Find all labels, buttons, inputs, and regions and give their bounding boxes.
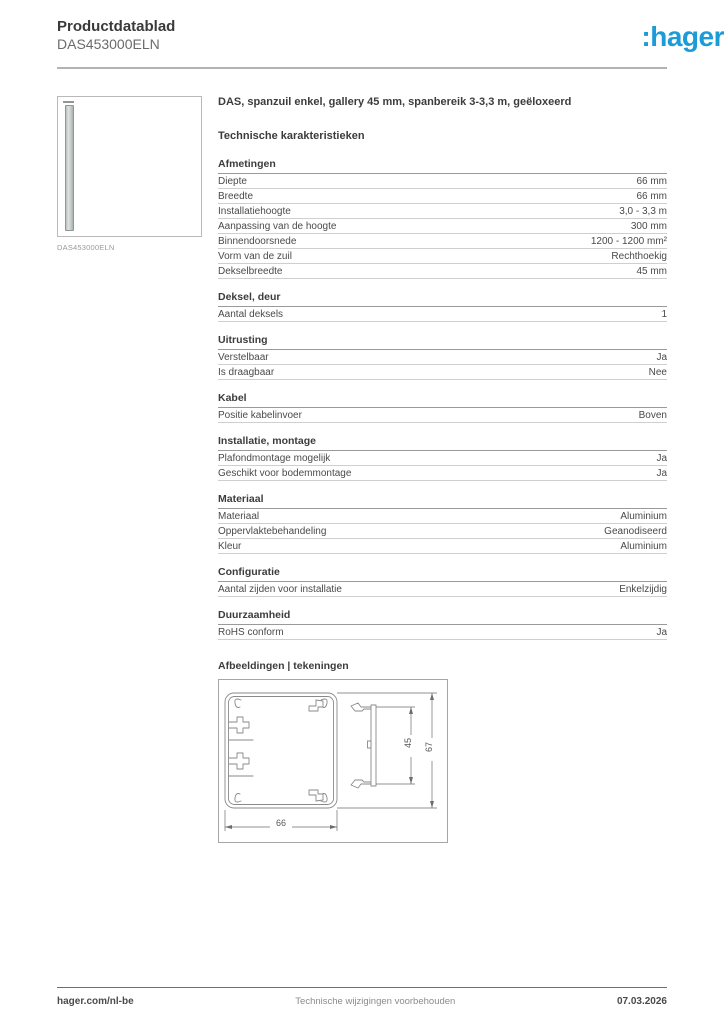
spec-value: Boven — [639, 410, 667, 421]
spec-row: Oppervlaktebehandeling Geanodiseerd — [218, 524, 667, 539]
spec-row: Kleur Aluminium — [218, 539, 667, 554]
dim-height-label: 67 — [424, 742, 434, 752]
spec-value: 1200 - 1200 mm² — [591, 236, 667, 247]
spec-label: Oppervlaktebehandeling — [218, 526, 326, 537]
spec-value: Geanodiseerd — [604, 526, 667, 537]
spec-group-title: Duurzaamheid — [218, 609, 667, 625]
spec-row: Verstelbaar Ja — [218, 350, 667, 365]
spec-value: Aluminium — [620, 541, 667, 552]
spec-group: Duurzaamheid RoHS conform Ja — [218, 609, 667, 640]
spec-group-title: Uitrusting — [218, 334, 667, 350]
spec-row: Is draagbaar Nee — [218, 365, 667, 380]
spec-row: Positie kabelinvoer Boven — [218, 408, 667, 423]
spec-group: Installatie, montage Plafondmontage moge… — [218, 435, 667, 481]
spec-label: Materiaal — [218, 511, 259, 522]
spec-label: Aanpassing van de hoogte — [218, 221, 336, 232]
spec-group: Deksel, deur Aantal deksels 1 — [218, 291, 667, 322]
footer-website-link[interactable]: hager.com/nl-be — [57, 996, 134, 1007]
spec-row: Aanpassing van de hoogte 300 mm — [218, 219, 667, 234]
spec-value: Nee — [649, 367, 667, 378]
dim-width-label: 66 — [276, 818, 286, 828]
profile-cross-section-drawing: 66 45 67 — [219, 680, 447, 842]
spec-rows: Aantal zijden voor installatie Enkelzijd… — [218, 582, 667, 597]
spec-rows: Plafondmontage mogelijk Ja Geschikt voor… — [218, 451, 667, 481]
spec-label: Verstelbaar — [218, 352, 269, 363]
spec-row: Aantal deksels 1 — [218, 307, 667, 322]
page-header: Productdatablad DAS453000ELN — [57, 18, 667, 53]
spec-value: 66 mm — [636, 176, 667, 187]
spec-label: Binnendoorsnede — [218, 236, 296, 247]
spec-label: Vorm van de zuil — [218, 251, 292, 262]
spec-groups: Afmetingen Diepte 66 mm Breedte 66 mm In… — [218, 158, 667, 640]
spec-value: Ja — [656, 352, 667, 363]
product-column-image — [65, 105, 74, 231]
spec-group-title: Installatie, montage — [218, 435, 667, 451]
spec-row: RoHS conform Ja — [218, 625, 667, 640]
spec-group: Materiaal Materiaal Aluminium Oppervlakt… — [218, 493, 667, 554]
spec-row: Geschikt voor bodemmontage Ja — [218, 466, 667, 481]
spec-label: Aantal zijden voor installatie — [218, 584, 342, 595]
spec-row: Aantal zijden voor installatie Enkelzijd… — [218, 582, 667, 597]
spec-label: Is draagbaar — [218, 367, 274, 378]
spec-label: Installatiehoogte — [218, 206, 291, 217]
spec-value: 1 — [661, 309, 667, 320]
product-image-column: DAS453000ELN — [57, 96, 202, 252]
footer-disclaimer: Technische wijzigingen voorbehouden — [295, 996, 455, 1007]
spec-label: RoHS conform — [218, 627, 284, 638]
spec-group: Afmetingen Diepte 66 mm Breedte 66 mm In… — [218, 158, 667, 279]
spec-label: Kleur — [218, 541, 241, 552]
spec-value: 300 mm — [631, 221, 667, 232]
main-content: DAS, spanzuil enkel, gallery 45 mm, span… — [218, 96, 667, 843]
spec-group-title: Deksel, deur — [218, 291, 667, 307]
product-title: DAS, spanzuil enkel, gallery 45 mm, span… — [218, 96, 667, 109]
spec-group-title: Kabel — [218, 392, 667, 408]
spec-label: Diepte — [218, 176, 247, 187]
header-divider — [57, 67, 667, 69]
page-title: Productdatablad — [57, 18, 667, 36]
spec-rows: Materiaal Aluminium Oppervlaktebehandeli… — [218, 509, 667, 554]
logo-colon: : — [641, 21, 650, 52]
spec-group-title: Afmetingen — [218, 158, 667, 174]
spec-label: Positie kabelinvoer — [218, 410, 302, 421]
spec-value: 66 mm — [636, 191, 667, 202]
hager-logo: :hager — [641, 22, 724, 52]
spec-group: Configuratie Aantal zijden voor installa… — [218, 566, 667, 597]
spec-rows: Verstelbaar Ja Is draagbaar Nee — [218, 350, 667, 380]
product-image — [57, 96, 202, 237]
spec-label: Geschikt voor bodemmontage — [218, 468, 351, 479]
spec-row: Breedte 66 mm — [218, 189, 667, 204]
spec-value: Ja — [656, 468, 667, 479]
spec-group-title: Materiaal — [218, 493, 667, 509]
spec-label: Dekselbreedte — [218, 266, 282, 277]
spec-value: Ja — [656, 627, 667, 638]
spec-rows: RoHS conform Ja — [218, 625, 667, 640]
spec-group-title: Configuratie — [218, 566, 667, 582]
spec-label: Breedte — [218, 191, 253, 202]
footer-divider — [57, 987, 667, 988]
spec-value: Aluminium — [620, 511, 667, 522]
spec-row: Materiaal Aluminium — [218, 509, 667, 524]
spec-value: Ja — [656, 453, 667, 464]
spec-group: Kabel Positie kabelinvoer Boven — [218, 392, 667, 423]
spec-value: 3,0 - 3,3 m — [619, 206, 667, 217]
product-column-cap — [63, 101, 74, 103]
spec-rows: Diepte 66 mm Breedte 66 mm Installatieho… — [218, 174, 667, 279]
footer-date: 07.03.2026 — [617, 996, 667, 1007]
spec-label: Plafondmontage mogelijk — [218, 453, 330, 464]
tech-characteristics-title: Technische karakteristieken — [218, 130, 667, 142]
logo-text: hager — [650, 21, 724, 52]
drawings-title: Afbeeldingen | tekeningen — [218, 660, 667, 672]
spec-rows: Positie kabelinvoer Boven — [218, 408, 667, 423]
spec-row: Dekselbreedte 45 mm — [218, 264, 667, 279]
spec-row: Installatiehoogte 3,0 - 3,3 m — [218, 204, 667, 219]
product-datasheet-page: Productdatablad DAS453000ELN :hager DAS4… — [0, 0, 724, 1024]
spec-row: Diepte 66 mm — [218, 174, 667, 189]
spec-row: Vorm van de zuil Rechthoekig — [218, 249, 667, 264]
spec-row: Plafondmontage mogelijk Ja — [218, 451, 667, 466]
spec-rows: Aantal deksels 1 — [218, 307, 667, 322]
dim-cover-label: 45 — [403, 738, 413, 748]
page-footer: hager.com/nl-be Technische wijzigingen v… — [57, 996, 667, 1007]
spec-label: Aantal deksels — [218, 309, 283, 320]
spec-value: Enkelzijdig — [619, 584, 667, 595]
product-code: DAS453000ELN — [57, 36, 667, 53]
product-image-caption: DAS453000ELN — [57, 243, 202, 252]
spec-value: 45 mm — [636, 266, 667, 277]
spec-value: Rechthoekig — [611, 251, 667, 262]
technical-drawing: 66 45 67 — [218, 679, 448, 843]
spec-group: Uitrusting Verstelbaar Ja Is draagbaar N… — [218, 334, 667, 380]
spec-row: Binnendoorsnede 1200 - 1200 mm² — [218, 234, 667, 249]
